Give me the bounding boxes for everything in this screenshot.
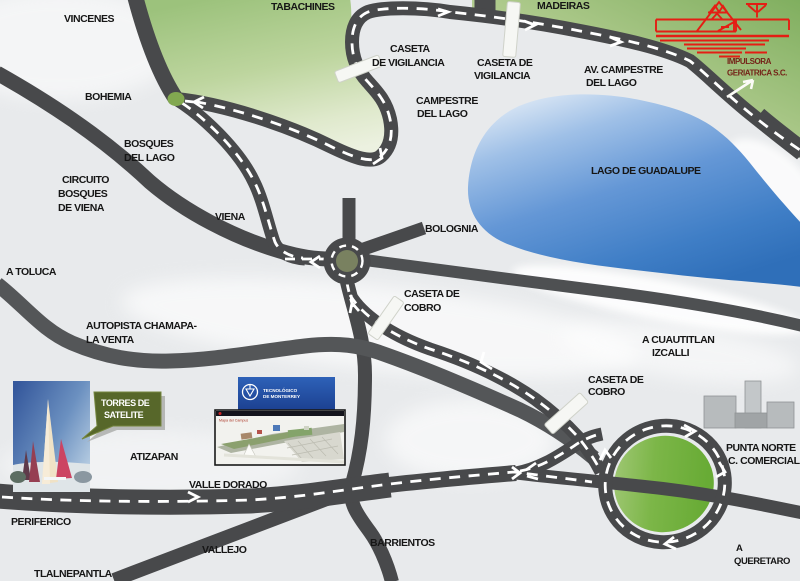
svg-text:VIENA: VIENA <box>215 211 246 223</box>
svg-text:BOSQUES: BOSQUES <box>58 188 108 200</box>
svg-text:BOSQUES: BOSQUES <box>124 138 174 150</box>
svg-text:IZCALLI: IZCALLI <box>652 347 690 359</box>
svg-text:CASETA DE: CASETA DE <box>477 57 533 69</box>
svg-text:PERIFERICO: PERIFERICO <box>11 516 71 528</box>
svg-text:ATIZAPAN: ATIZAPAN <box>130 451 178 463</box>
svg-text:AUTOPISTA CHAMAPA-: AUTOPISTA CHAMAPA- <box>86 320 197 332</box>
svg-text:VIGILANCIA: VIGILANCIA <box>474 70 531 82</box>
svg-text:CASETA DE: CASETA DE <box>588 374 644 386</box>
svg-text:TORRES DE: TORRES DE <box>101 398 150 408</box>
svg-text:GERIATRICA S.C.: GERIATRICA S.C. <box>727 69 787 78</box>
svg-text:BOLOGNIA: BOLOGNIA <box>425 223 479 235</box>
svg-text:PUNTA NORTE: PUNTA NORTE <box>726 442 796 454</box>
svg-text:MADEIRAS: MADEIRAS <box>537 0 590 12</box>
svg-text:CIRCUITO: CIRCUITO <box>62 174 109 186</box>
svg-text:A: A <box>736 543 743 554</box>
svg-text:CASETA DE: CASETA DE <box>404 288 460 300</box>
svg-text:LAGO DE GUADALUPE: LAGO DE GUADALUPE <box>591 165 701 177</box>
svg-text:QUERETARO: QUERETARO <box>734 556 790 567</box>
svg-text:COBRO: COBRO <box>404 302 441 314</box>
svg-text:AV. CAMPESTRE: AV. CAMPESTRE <box>584 64 663 76</box>
svg-text:A CUAUTITLAN: A CUAUTITLAN <box>642 334 714 346</box>
svg-text:COBRO: COBRO <box>588 386 625 398</box>
svg-text:DE VIENA: DE VIENA <box>58 202 105 214</box>
svg-text:TLALNEPANTLA: TLALNEPANTLA <box>34 568 113 580</box>
svg-text:Mapa del Campus: Mapa del Campus <box>219 419 248 423</box>
svg-text:C. COMERCIAL: C. COMERCIAL <box>728 455 800 467</box>
svg-text:A TOLUCA: A TOLUCA <box>6 266 57 278</box>
svg-text:DE VIGILANCIA: DE VIGILANCIA <box>372 57 445 69</box>
svg-text:DEL LAGO: DEL LAGO <box>124 152 175 164</box>
svg-text:DE MONTERREY: DE MONTERREY <box>263 394 300 399</box>
svg-text:SATELITE: SATELITE <box>104 410 144 420</box>
svg-text:TECNOLÓGICO: TECNOLÓGICO <box>263 386 298 393</box>
svg-text:DEL LAGO: DEL LAGO <box>586 77 637 89</box>
svg-text:CASETA: CASETA <box>390 43 431 55</box>
svg-text:VALLEJO: VALLEJO <box>202 544 247 556</box>
svg-text:VALLE DORADO: VALLE DORADO <box>189 479 267 491</box>
svg-text:VINCENES: VINCENES <box>64 13 115 25</box>
svg-text:LA VENTA: LA VENTA <box>86 334 135 346</box>
svg-text:IMPULSORA: IMPULSORA <box>727 57 772 66</box>
svg-text:BOHEMIA: BOHEMIA <box>85 91 132 103</box>
svg-text:TABACHINES: TABACHINES <box>271 1 335 13</box>
svg-text:DEL LAGO: DEL LAGO <box>417 108 468 120</box>
svg-text:BARRIENTOS: BARRIENTOS <box>370 537 435 549</box>
svg-text:CAMPESTRE: CAMPESTRE <box>416 95 478 107</box>
